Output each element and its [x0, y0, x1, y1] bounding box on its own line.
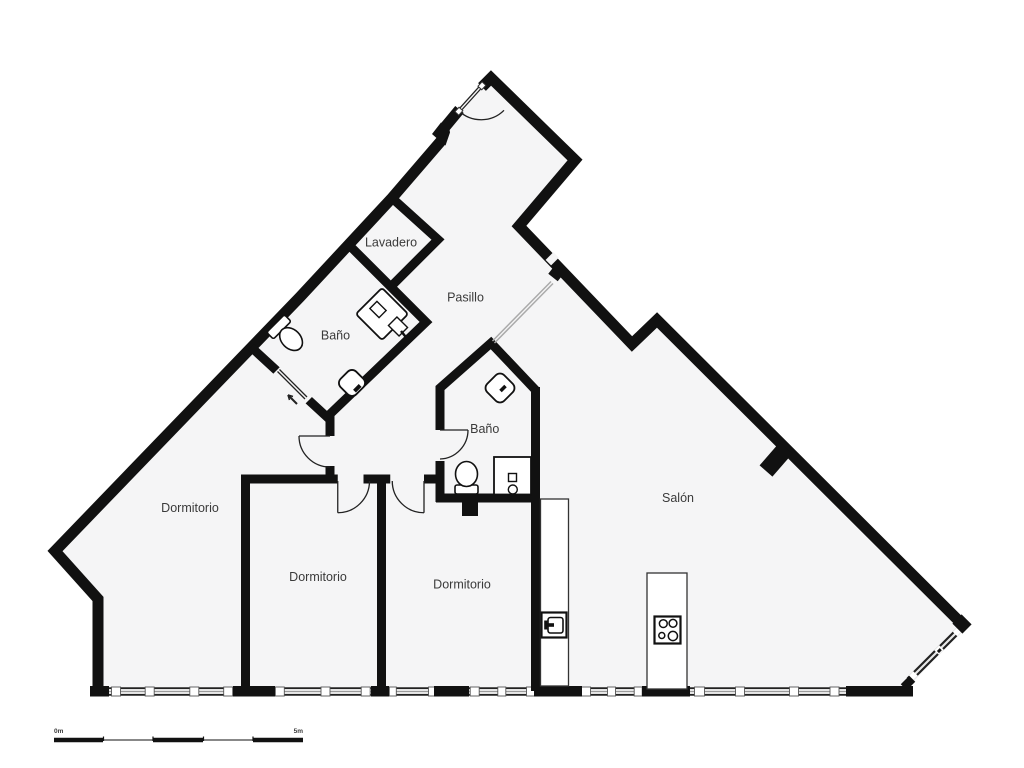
svg-text:Baño: Baño: [470, 422, 499, 436]
svg-text:Salón: Salón: [662, 491, 694, 505]
svg-text:Dormitorio: Dormitorio: [433, 578, 491, 592]
svg-text:Pasillo: Pasillo: [447, 291, 484, 305]
svg-text:5m: 5m: [294, 728, 304, 735]
svg-text:Baño: Baño: [321, 329, 350, 343]
svg-text:Dormitorio: Dormitorio: [161, 501, 219, 515]
svg-text:0m: 0m: [54, 728, 64, 735]
svg-text:Dormitorio: Dormitorio: [289, 570, 347, 584]
svg-text:Lavadero: Lavadero: [365, 236, 417, 250]
